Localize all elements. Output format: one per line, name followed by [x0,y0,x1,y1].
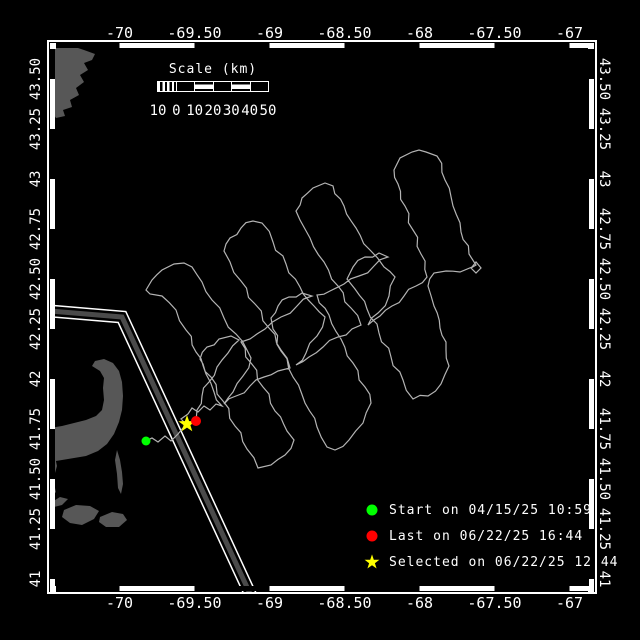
axis-tick-label: 41.50 [596,458,612,500]
scale-bar-tick-label: 20 [205,103,222,119]
scale-bar-tick-label: 10 [150,103,167,119]
axis-tick-label: 42 [596,371,612,388]
legend-label-selected: Selected on 06/22/25 12:44 [389,555,619,570]
scale-bar-graphic [157,81,269,92]
scale-bar-title: Scale (km) [158,62,268,77]
axis-tick-label: 41.75 [596,408,612,450]
legend-row-last: Last on 06/22/25 16:44 [363,523,619,549]
scale-bar-tick-label: 0 [172,103,180,119]
legend-label-last: Last on 06/22/25 16:44 [389,529,583,544]
legend: Start on 04/15/25 10:59 Last on 06/22/25… [363,497,619,575]
axis-tick-label: 43.50 [596,58,612,100]
selected-star-icon [363,553,381,571]
scale-bar-segment [231,82,250,91]
scale-bar-segment [158,82,176,91]
scale-bar-tick-label: 50 [260,103,277,119]
legend-row-start: Start on 04/15/25 10:59 [363,497,619,523]
axis-tick-label: 43.25 [596,108,612,150]
scale-bar-tick-label: 40 [241,103,258,119]
axis-tick-label: 42.75 [596,208,612,250]
scale-bar-segment [213,82,232,91]
start-dot-icon [363,501,381,519]
last-dot-icon [363,527,381,545]
scale-bar-segment [194,82,213,91]
axis-tick-label: 42.25 [596,308,612,350]
map-window: -70-69.50-69-68.50-68-67.50-67 -70-69.50… [0,0,640,640]
scale-bar-labels: 1001020304050 [140,103,290,119]
scale-bar-segment [250,82,269,91]
scale-bar-tick-label: 30 [223,103,240,119]
axis-tick-label: 42.50 [596,258,612,300]
axis-tick-label: 43 [596,171,612,188]
legend-label-start: Start on 04/15/25 10:59 [389,503,592,518]
scale-bar-segment [176,82,195,91]
scale-bar-tick-label: 10 [186,103,203,119]
legend-row-selected: Selected on 06/22/25 12:44 [363,549,619,575]
